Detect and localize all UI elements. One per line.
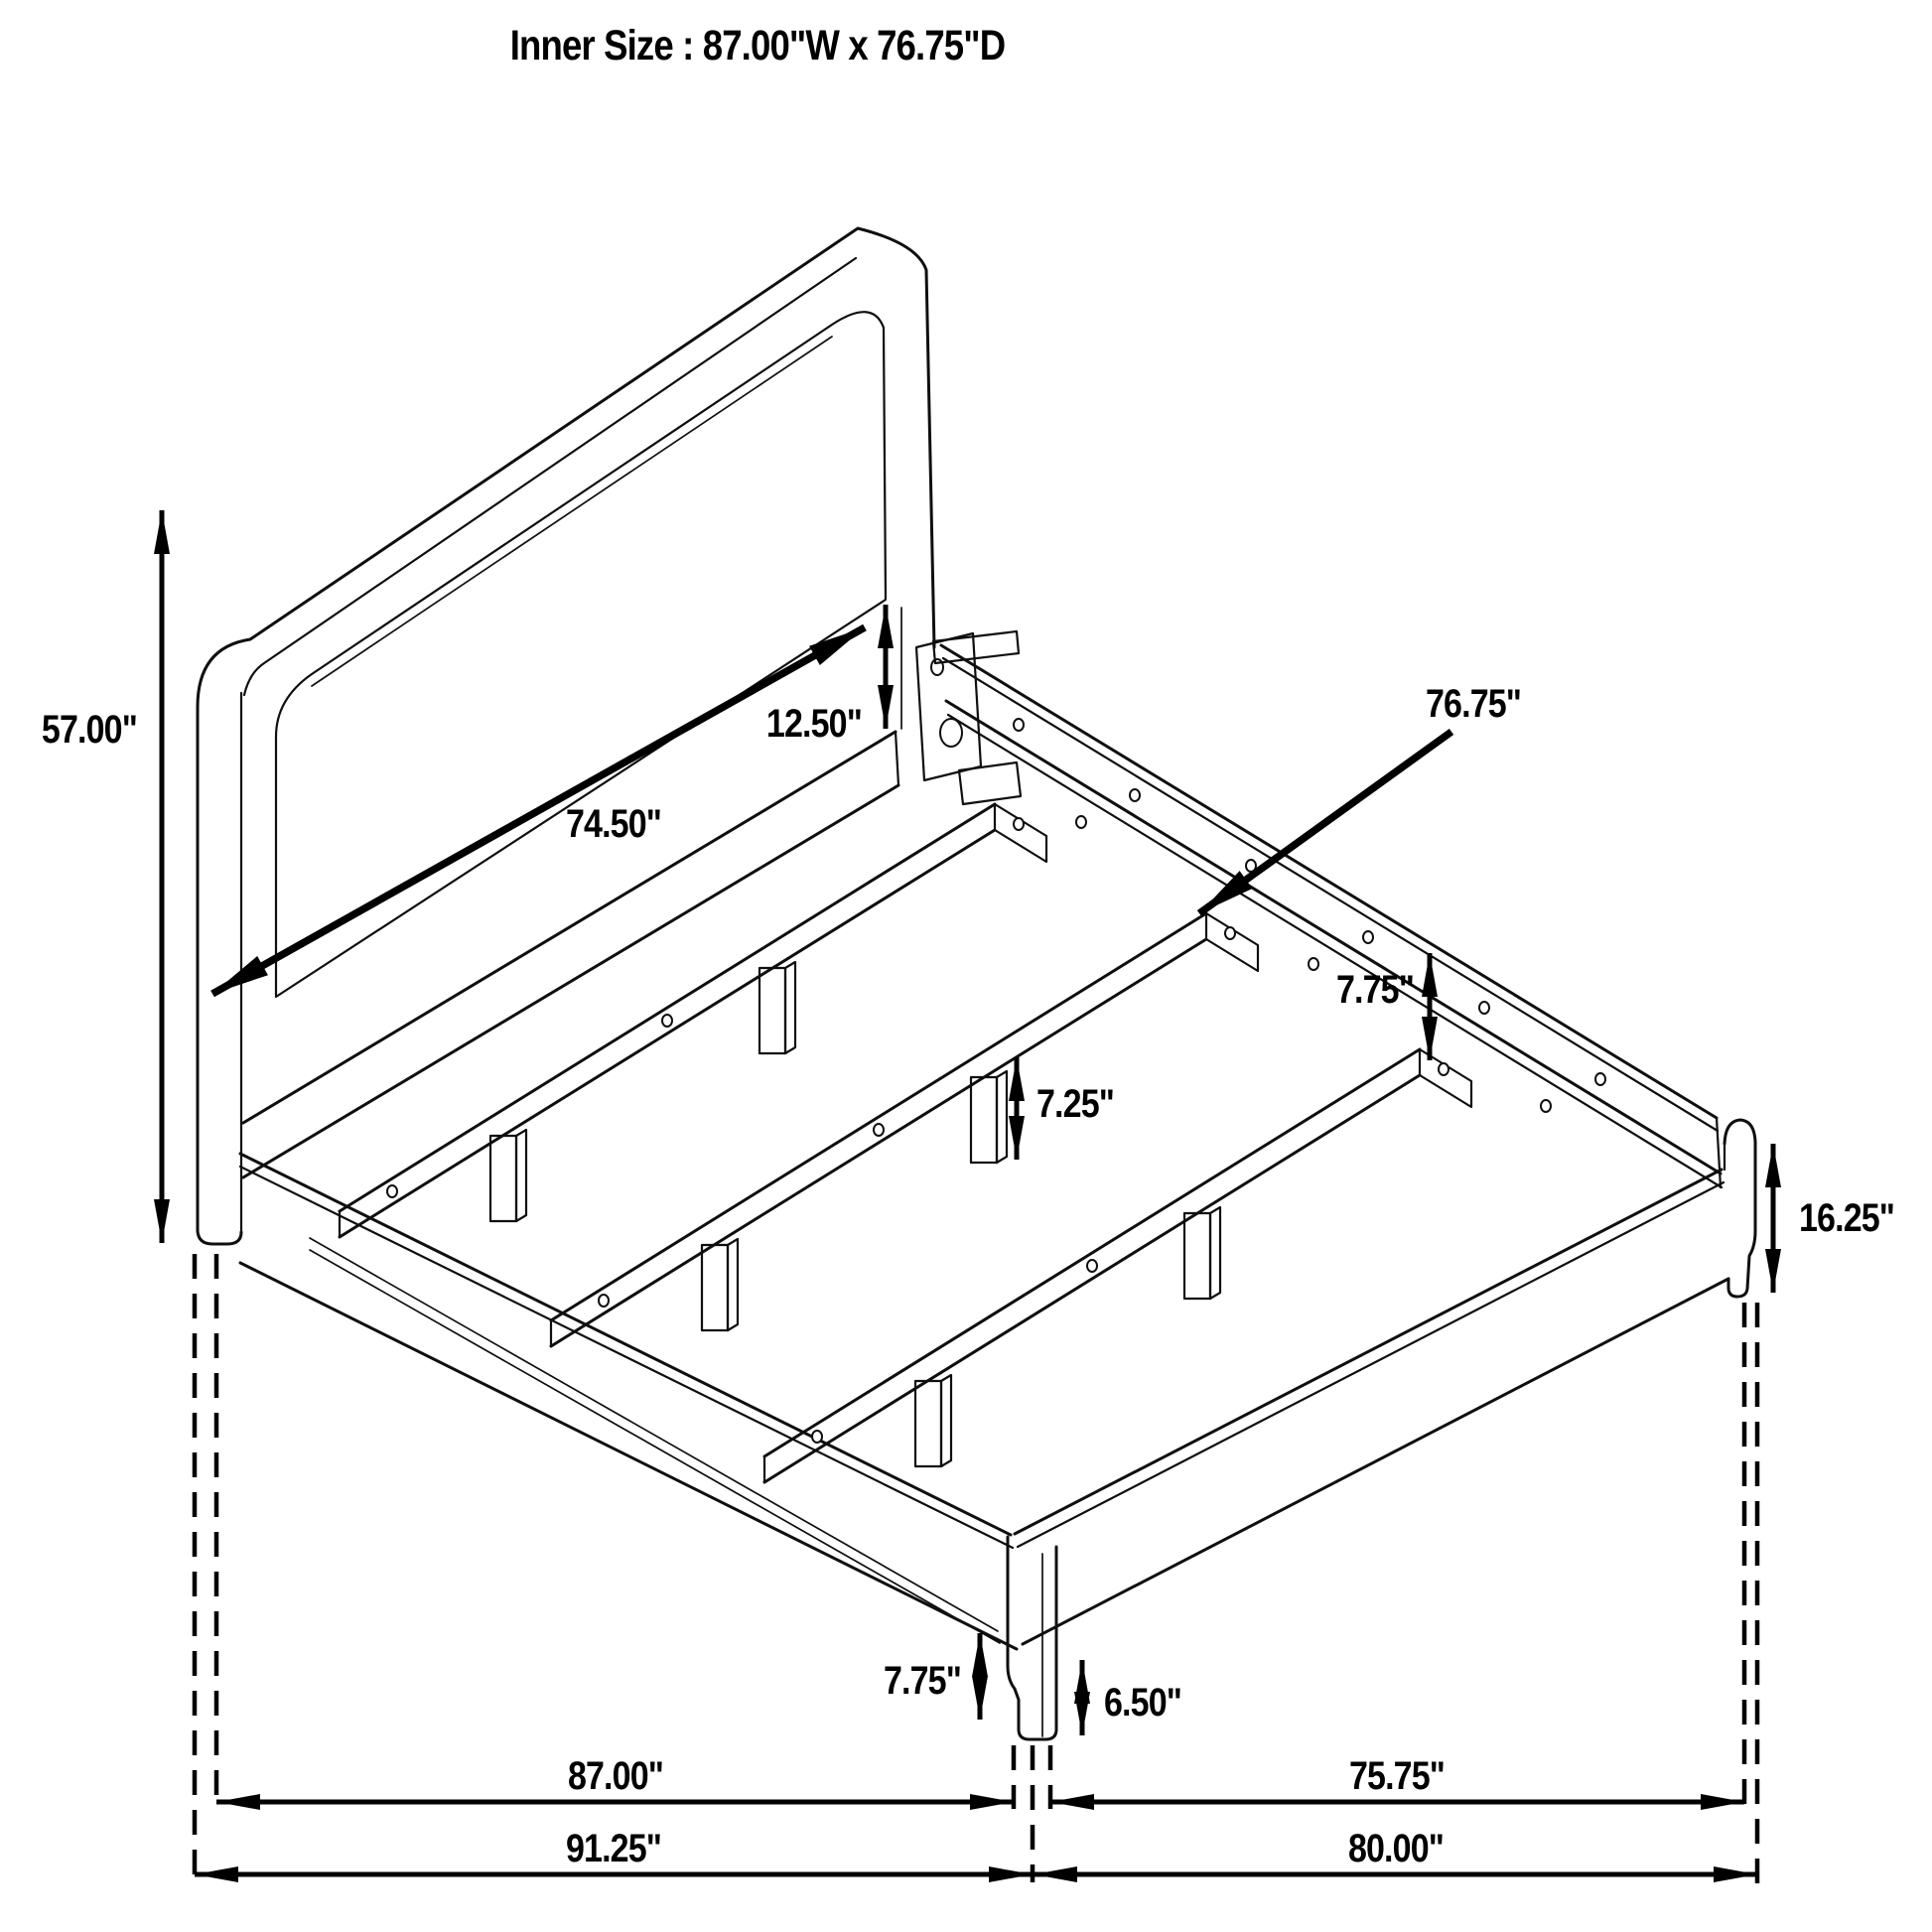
dim-corner-post-height-label: 16.25" (1799, 1194, 1894, 1239)
headboard-rail-bracket (916, 631, 1021, 804)
dim-headboard-height: 57.00" (42, 510, 162, 1243)
dim-inner-width: 87.00" (216, 1752, 1014, 1802)
left-slat-cleat (310, 1238, 1000, 1643)
slat-1 (340, 804, 1046, 1237)
page-title: Inner Size : 87.00"W x 76.75"D (510, 22, 1006, 69)
dim-inner-depth-label: 75.75" (1349, 1752, 1445, 1797)
dim-front-leg-height: 6.50" (1082, 1660, 1181, 1735)
right-corner-post (1725, 1120, 1755, 1297)
dim-outer-width-label: 91.25" (566, 1825, 661, 1869)
dim-headboard-height-label: 57.00" (42, 706, 137, 751)
dim-outer-width: 91.25" (195, 1825, 1033, 1874)
dim-outer-depth: 80.00" (1034, 1825, 1757, 1874)
dim-front-leg-total-height: 7.75" (884, 1633, 980, 1720)
dim-front-leg-height-label: 6.50" (1104, 1679, 1181, 1724)
dim-inner-depth-pointer: 76.75" (1199, 680, 1521, 913)
dim-inner-width-label: 87.00" (568, 1752, 663, 1797)
dim-rail-to-slat-label: 7.75" (1336, 966, 1414, 1011)
foot-rail (1015, 1170, 1728, 1644)
side-rail-screw-holes (1014, 719, 1605, 1112)
slats (340, 804, 1471, 1482)
slat-3-legs (915, 1207, 1220, 1466)
dim-front-leg-total-height-label: 7.75" (884, 1657, 961, 1702)
dim-headboard-inner-width-label: 74.50" (566, 800, 661, 845)
projection-dashed-lines (195, 1254, 1757, 1884)
dim-rail-to-slat: 7.75" (1336, 953, 1430, 1060)
dim-inner-depth: 75.75" (1050, 1752, 1744, 1802)
dim-panel-to-rail-label: 12.50" (766, 700, 862, 745)
dim-inner-depth-pointer-label: 76.75" (1426, 680, 1521, 725)
dim-slat-leg-height: 7.25" (1017, 1057, 1114, 1160)
dim-corner-post-height: 16.25" (1773, 1144, 1894, 1293)
slat-2-legs (702, 1071, 1007, 1330)
slat-2 (551, 913, 1258, 1346)
slat-3 (764, 1049, 1471, 1482)
dim-headboard-inner-width: 74.50" (212, 627, 865, 994)
bed-frame-dimension-diagram: Inner Size : 87.00"W x 76.75"D (0, 0, 1932, 1932)
dim-slat-leg-height-label: 7.25" (1036, 1080, 1114, 1125)
technical-drawing-page: Inner Size : 87.00"W x 76.75"D (0, 0, 1932, 1932)
dim-outer-depth-label: 80.00" (1348, 1825, 1444, 1869)
